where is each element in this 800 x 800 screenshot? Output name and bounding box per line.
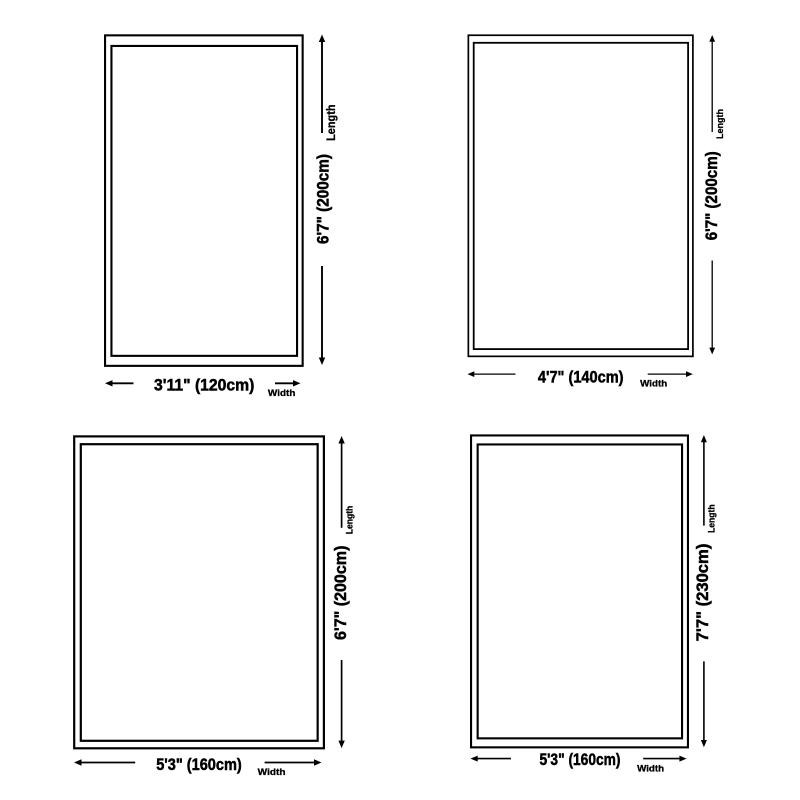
svg-text:Length: Length xyxy=(707,504,718,533)
svg-text:Length: Length xyxy=(715,109,726,139)
svg-text:4'7" (140cm): 4'7" (140cm) xyxy=(538,369,624,387)
svg-text:Length: Length xyxy=(345,506,356,535)
svg-text:6'7" (200cm): 6'7" (200cm) xyxy=(703,151,721,240)
svg-text:Width: Width xyxy=(268,388,296,399)
svg-text:6'7" (200cm): 6'7" (200cm) xyxy=(332,546,350,641)
svg-text:5'3" (160cm): 5'3" (160cm) xyxy=(540,751,621,769)
svg-text:6'7" (200cm): 6'7" (200cm) xyxy=(315,154,333,244)
svg-text:Width: Width xyxy=(258,767,286,778)
svg-text:3'11" (120cm): 3'11" (120cm) xyxy=(154,376,254,394)
svg-text:7'7" (230cm): 7'7" (230cm) xyxy=(694,544,712,642)
svg-text:Length: Length xyxy=(324,105,338,141)
svg-text:5'3" (160cm): 5'3" (160cm) xyxy=(156,756,242,774)
svg-text:Width: Width xyxy=(640,379,667,390)
svg-text:Width: Width xyxy=(637,763,664,774)
